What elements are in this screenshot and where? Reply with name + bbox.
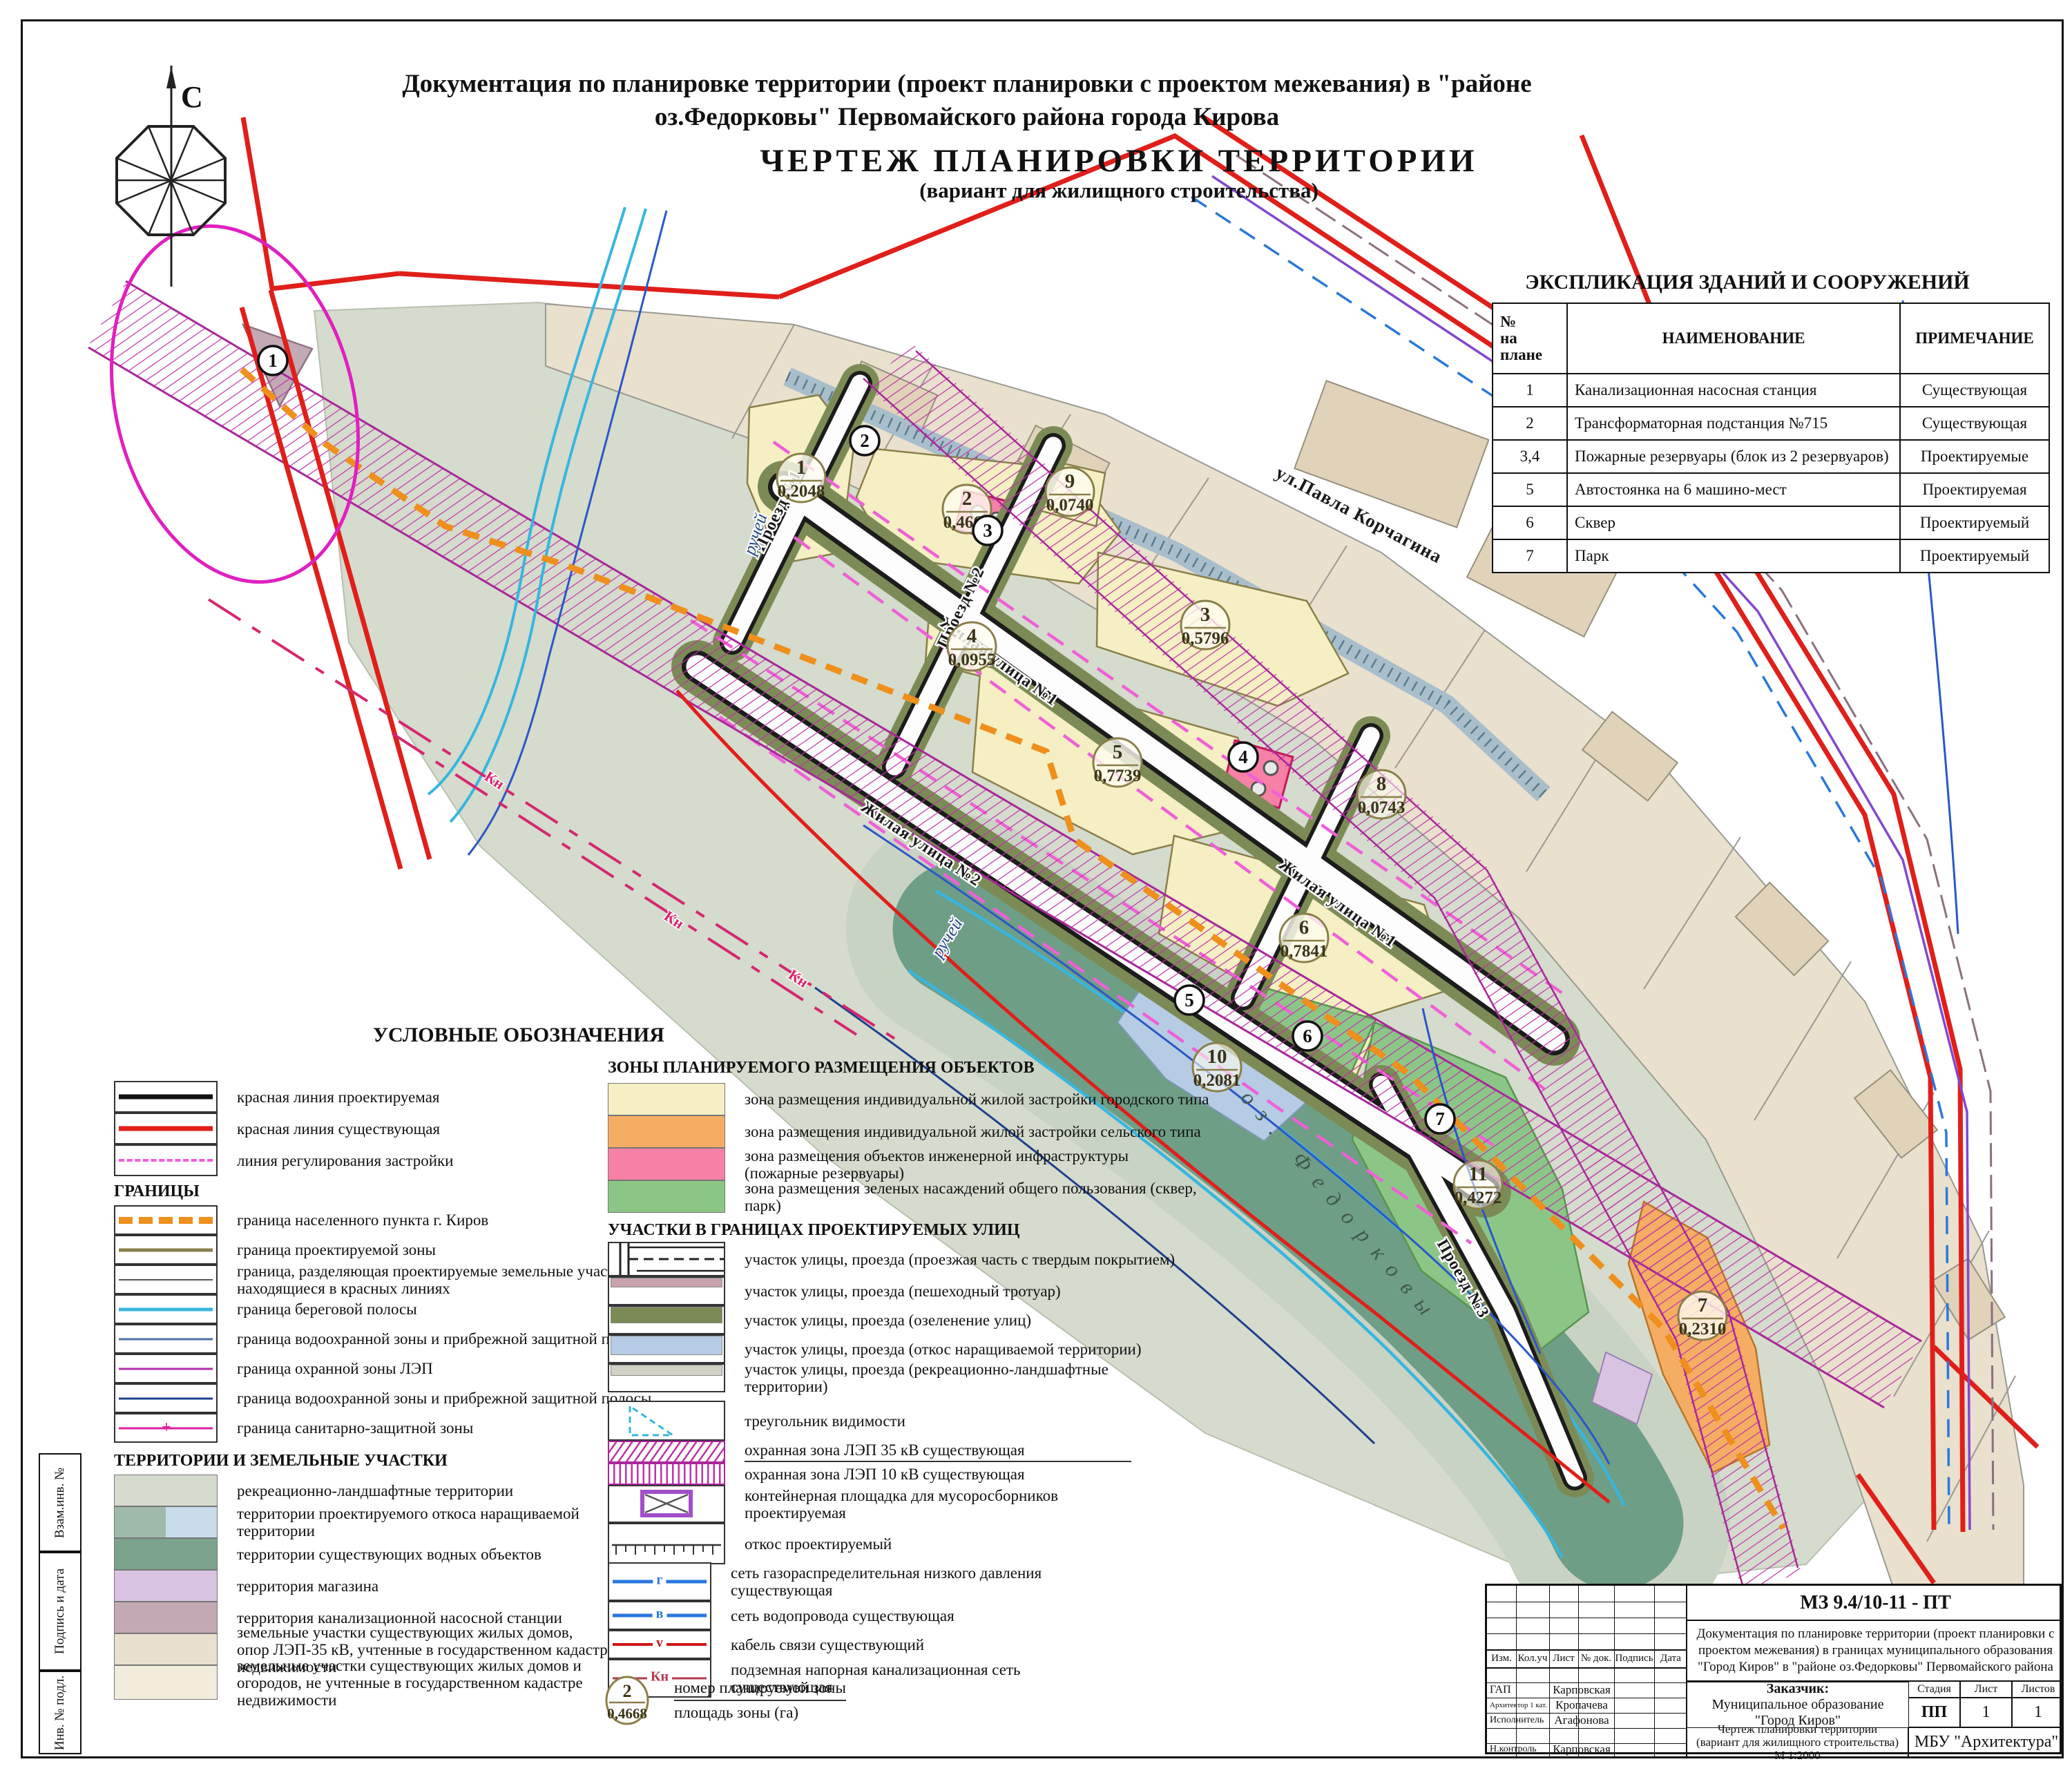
legend-item-label: граница охранной зоны ЛЭП bbox=[237, 1360, 665, 1377]
table-row: 6СкверПроектируемый bbox=[1493, 506, 2049, 539]
lep35-zone-swatch bbox=[608, 1441, 725, 1463]
legend-zones-group: зона размещения индивидуальной жилой зас… bbox=[608, 1083, 1228, 1213]
roadway-icon bbox=[609, 1243, 724, 1275]
legend-item-label: участок улицы, проезда (проезжая часть с… bbox=[745, 1251, 1228, 1268]
role-architect-name: Кропачева bbox=[1549, 1698, 1614, 1713]
legend-item-label: откос проектируемый bbox=[745, 1535, 1228, 1553]
legend-item: контейнерная площадка для мусоросборнико… bbox=[608, 1485, 1228, 1523]
drawing-title: ЧЕРТЕЖ ПЛАНИРОВКИ ТЕРРИТОРИИ bbox=[463, 142, 1775, 180]
col-podpis: Подпись bbox=[1614, 1649, 1654, 1667]
planned-slope-icon bbox=[609, 1524, 724, 1563]
planned-slope-swatch bbox=[608, 1523, 725, 1564]
north-arrow-icon bbox=[117, 66, 225, 287]
red-line-planned-swatch bbox=[114, 1081, 218, 1113]
legend-item-label: красная линия существующая bbox=[237, 1120, 665, 1138]
sheets-value: 1 bbox=[2012, 1698, 2064, 1727]
zones-section-title: ЗОНЫ ПЛАНИРУЕМОГО РАЗМЕЩЕНИЯ ОБЪЕКТОВ bbox=[608, 1059, 1035, 1077]
legend-item-label: зона размещения индивидуальной жилой зас… bbox=[745, 1091, 1228, 1108]
red-line-existing-swatch bbox=[114, 1113, 218, 1144]
legend-item: участок улицы, проезда (откос наращиваем… bbox=[608, 1334, 1228, 1363]
legend-item: гсеть газораспределительная низкого давл… bbox=[608, 1562, 1214, 1601]
legend-item-label: участок улицы, проезда (озеленение улиц) bbox=[745, 1312, 1228, 1329]
legend-item-label: треугольник видимости bbox=[745, 1412, 1228, 1430]
planned-zone-boundary-swatch bbox=[114, 1235, 218, 1265]
legend-item-label: контейнерная площадка для мусоросборнико… bbox=[745, 1487, 1228, 1522]
legend-symbols-group: треугольник видимости охранная зона ЛЭП … bbox=[608, 1401, 1228, 1564]
svg-text:2: 2 bbox=[860, 430, 870, 451]
zone-urban-swatch bbox=[608, 1083, 725, 1115]
drawing-sheet: Кн Кн Кн Жилая улица №1 Жилая улица №1 Ж… bbox=[0, 0, 2072, 1775]
svg-text:7: 7 bbox=[1698, 1294, 1708, 1316]
col-data: Дата bbox=[1654, 1649, 1687, 1667]
col-list: Лист bbox=[1549, 1649, 1578, 1667]
legend-item: земельные участки существующих жилых дом… bbox=[114, 1665, 665, 1700]
legend-item: участок улицы, проезда (рекреационно-лан… bbox=[608, 1363, 1228, 1392]
recreation-swatch bbox=[114, 1475, 218, 1506]
explication-table: № на плане НАИМЕНОВАНИЕ ПРИМЕЧАНИЕ 1Кана… bbox=[1492, 303, 2050, 573]
col-header-num: № на плане bbox=[1493, 303, 1567, 374]
city-boundary-swatch bbox=[114, 1205, 218, 1235]
table-row: 7ПаркПроектируемый bbox=[1493, 539, 2049, 573]
legend-item-label: граница населенного пункта г. Киров bbox=[237, 1211, 665, 1229]
north-label: С bbox=[181, 80, 203, 114]
legend-item-label: сеть газораспределительная низкого давле… bbox=[731, 1564, 1214, 1599]
sheet-label: Лист bbox=[1960, 1681, 2012, 1698]
streets-section-title: УЧАСТКИ В ГРАНИЦАХ ПРОЕКТИРУЕМЫХ УЛИЦ bbox=[608, 1221, 1019, 1240]
svg-text:11: 11 bbox=[1468, 1163, 1487, 1185]
svg-text:5: 5 bbox=[1113, 741, 1123, 763]
street-roadway-swatch bbox=[608, 1242, 725, 1276]
svg-text:6: 6 bbox=[1299, 917, 1310, 939]
stamp-inv: Инв. № подл. bbox=[39, 1671, 81, 1754]
doc-title-line2: оз.Федорковы" Первомайского района город… bbox=[311, 102, 1623, 132]
doc-description: Документация по планировке территории (п… bbox=[1687, 1620, 2064, 1681]
legend-item-label: граница водоохранной зоны и прибрежной з… bbox=[237, 1390, 665, 1407]
dividing-boundary-swatch bbox=[114, 1265, 218, 1294]
legend-item: участок улицы, проезда (проезжая часть с… bbox=[608, 1242, 1228, 1276]
legend-item: зона размещения индивидуальной жилой зас… bbox=[608, 1115, 1228, 1148]
slope-territory-swatch bbox=[114, 1506, 218, 1538]
legend-item-label: граница водоохранной зоны и прибрежной з… bbox=[237, 1330, 665, 1347]
svg-text:3: 3 bbox=[1200, 604, 1211, 626]
role-ncontrol: Н.контроль bbox=[1487, 1742, 1549, 1756]
drawing-subtitle: (вариант для жилищного строительства) bbox=[463, 178, 1775, 203]
water-objects-swatch bbox=[114, 1538, 218, 1570]
legend-item: граница населенного пункта г. Киров bbox=[114, 1205, 665, 1235]
svg-text:7: 7 bbox=[1435, 1109, 1445, 1129]
legend-item: линия регулирования застройки bbox=[114, 1144, 665, 1176]
svg-text:8: 8 bbox=[1376, 773, 1387, 795]
title-block: Изм. Кол.уч Лист № док. Подпись Дата ГАП… bbox=[1485, 1584, 2062, 1754]
svg-text:0,0740: 0,0740 bbox=[1046, 496, 1094, 515]
svg-text:0,2048: 0,2048 bbox=[778, 482, 825, 501]
org-name: МБУ "Архитектура" bbox=[1908, 1727, 2064, 1756]
legend-item: красная линия проектируемая bbox=[114, 1081, 665, 1113]
lep10-zone-swatch bbox=[608, 1463, 725, 1485]
sheets-label: Листов bbox=[2012, 1681, 2064, 1698]
legend-item: всеть водопровода существующая bbox=[608, 1601, 1214, 1630]
legend-item: vкабель связи существующий bbox=[608, 1630, 1214, 1659]
legend-item: граница проектируемой зоны bbox=[114, 1235, 665, 1265]
legend-item: рекреационно-ландшафтные территории bbox=[114, 1475, 665, 1506]
legend-item-label: сеть водопровода существующая bbox=[731, 1607, 1214, 1624]
street-greenery-swatch bbox=[608, 1305, 725, 1334]
legend-item: граница водоохранной зоны и прибрежной з… bbox=[114, 1383, 665, 1413]
svg-text:10: 10 bbox=[1207, 1046, 1227, 1068]
sanitary-boundary-swatch bbox=[114, 1413, 218, 1443]
gas-net-swatch: г bbox=[608, 1562, 711, 1601]
customer-cell: Заказчик: Муниципальное образование "Гор… bbox=[1687, 1681, 1908, 1727]
role-gap: ГАП bbox=[1487, 1682, 1549, 1698]
legend-item-label: граница проектируемой зоны bbox=[237, 1241, 665, 1258]
coastal-strip-boundary-swatch bbox=[114, 1294, 218, 1324]
col-koluch: Кол.уч bbox=[1516, 1649, 1549, 1667]
legend-item: зона размещения зеленых насаждений общег… bbox=[608, 1180, 1228, 1213]
legend-item-label: зона размещения зеленых насаждений общег… bbox=[745, 1180, 1228, 1214]
stamp-podpis: Подпись и дата bbox=[39, 1552, 81, 1671]
cadastre-plots-swatch bbox=[114, 1633, 218, 1665]
legend-item-label: красная линия проектируемая bbox=[237, 1088, 665, 1106]
legend-item: зона размещения индивидуальной жилой зас… bbox=[608, 1083, 1228, 1115]
legend-item: охранная зона ЛЭП 10 кВ существующая bbox=[608, 1463, 1228, 1485]
svg-text:0,2310: 0,2310 bbox=[1679, 1320, 1727, 1339]
svg-text:0,5796: 0,5796 bbox=[1182, 629, 1229, 648]
cable-net-swatch: v bbox=[608, 1630, 711, 1659]
svg-text:0,0743: 0,0743 bbox=[1358, 798, 1406, 817]
legend-item-label: линия регулирования застройки bbox=[237, 1152, 665, 1169]
table-row: 5Автостоянка на 6 машино-местПроектируем… bbox=[1493, 473, 2049, 506]
legend-item-label: граница береговой полосы bbox=[237, 1301, 665, 1318]
legend-item: красная линия существующая bbox=[114, 1113, 665, 1144]
legend-item-label: зона размещения индивидуальной жилой зас… bbox=[745, 1123, 1228, 1140]
col-dok: № док. bbox=[1578, 1649, 1614, 1667]
svg-text:4: 4 bbox=[967, 625, 977, 647]
zone-number-icon: 2 0,4668 bbox=[601, 1674, 653, 1727]
legend-item: граница, разделяющая проектируемые земел… bbox=[114, 1265, 665, 1294]
shop-territory-swatch bbox=[114, 1570, 218, 1602]
svg-text:2: 2 bbox=[623, 1681, 632, 1701]
legend-item-label: участок улицы, проезда (откос наращиваем… bbox=[745, 1341, 1228, 1358]
regulation-line-swatch bbox=[114, 1144, 218, 1176]
col-izm: Изм. bbox=[1487, 1649, 1516, 1667]
waste-container-swatch bbox=[608, 1485, 725, 1523]
zone-rural-swatch bbox=[608, 1115, 725, 1148]
legend-streets-group: участок улицы, проезда (проезжая часть с… bbox=[608, 1242, 1228, 1392]
lep-guard-boundary-swatch bbox=[114, 1354, 218, 1383]
legend-item: территории проектируемого откоса наращив… bbox=[114, 1506, 665, 1538]
svg-text:6: 6 bbox=[1303, 1026, 1312, 1046]
svg-text:4: 4 bbox=[1238, 747, 1248, 767]
legend-title: УСЛОВНЫЕ ОБОЗНАЧЕНИЯ bbox=[373, 1024, 856, 1047]
legend-item: откос проектируемый bbox=[608, 1523, 1228, 1564]
legend-item-label: кабель связи существующий bbox=[731, 1636, 1214, 1653]
zone-green-swatch bbox=[608, 1180, 725, 1213]
legend-item-label: рекреационно-ландшафтные территории bbox=[237, 1482, 665, 1499]
svg-text:0,4272: 0,4272 bbox=[1455, 1189, 1502, 1207]
table-row: 3,4Пожарные резервуары (блок из 2 резерв… bbox=[1493, 440, 2049, 473]
territories-section-title: ТЕРРИТОРИИ И ЗЕМЕЛЬНЫЕ УЧАСТКИ bbox=[114, 1452, 448, 1470]
drawing-name-cell: Чертеж планировки территории (вариант дл… bbox=[1687, 1727, 1908, 1756]
legend-item-label: зона размещения объектов инженерной инфр… bbox=[745, 1147, 1228, 1182]
svg-text:5: 5 bbox=[1184, 990, 1194, 1010]
legend-item-label: территории существующих водных объектов bbox=[237, 1546, 665, 1563]
legend-lines-group: красная линия проектируемая красная лини… bbox=[114, 1081, 665, 1176]
borders-section-title: ГРАНИЦЫ bbox=[114, 1182, 200, 1201]
doc-code: МЗ 9.4/10-11 - ПТ bbox=[1687, 1586, 2064, 1620]
svg-text:0,0955: 0,0955 bbox=[948, 651, 996, 669]
svg-text:1: 1 bbox=[796, 457, 807, 479]
col-header-note: ПРИМЕЧАНИЕ bbox=[1900, 303, 2049, 374]
svg-text:0,7739: 0,7739 bbox=[1094, 767, 1142, 785]
doc-title-line1: Документация по планировке территории (п… bbox=[311, 69, 1623, 99]
zone-number-legend: 2 0,4668 номер планируемой зоны площадь … bbox=[601, 1674, 846, 1727]
legend-item: участок улицы, проезда (озеленение улиц) bbox=[608, 1305, 1228, 1334]
table-row: 1Канализационная насосная станцияСуществ… bbox=[1493, 374, 2049, 407]
zone-number-label: номер планируемой зоны bbox=[674, 1679, 846, 1701]
stage-label: Стадия bbox=[1908, 1681, 1960, 1698]
svg-text:0,7841: 0,7841 bbox=[1280, 942, 1328, 961]
explication-title: ЭКСПЛИКАЦИЯ ЗДАНИЙ И СООРУЖЕНИЙ bbox=[1492, 271, 2003, 294]
col-header-name: НАИМЕНОВАНИЕ bbox=[1567, 303, 1900, 374]
legend-territories-group: рекреационно-ландшафтные территории терр… bbox=[114, 1475, 665, 1700]
legend-item: территория магазина bbox=[114, 1570, 665, 1602]
legend-item: охранная зона ЛЭП 35 кВ существующая bbox=[608, 1441, 1228, 1463]
legend-item: граница санитарно-защитной зоны bbox=[114, 1413, 665, 1443]
legend-borders-group: граница населенного пункта г. Киров гран… bbox=[114, 1205, 665, 1443]
svg-text:0,4668: 0,4668 bbox=[607, 1705, 647, 1722]
legend-item-label: охранная зона ЛЭП 10 кВ существующая bbox=[745, 1466, 1228, 1483]
legend-item-label: участок улицы, проезда (рекреационно-лан… bbox=[745, 1361, 1228, 1395]
sheet-value: 1 bbox=[1960, 1698, 2012, 1727]
svg-text:9: 9 bbox=[1065, 470, 1075, 492]
zone-area-label: площадь зоны (га) bbox=[674, 1704, 846, 1722]
noncadastre-plots-swatch bbox=[114, 1665, 218, 1700]
visibility-triangle-icon bbox=[609, 1402, 724, 1439]
legend-item: граница охранной зоны ЛЭП bbox=[114, 1354, 665, 1383]
street-sidewalk-swatch bbox=[608, 1276, 725, 1305]
legend-item-label: охранная зона ЛЭП 35 кВ существующая bbox=[745, 1441, 1131, 1462]
legend-item: зона размещения объектов инженерной инфр… bbox=[608, 1148, 1228, 1180]
svg-text:2: 2 bbox=[962, 488, 972, 510]
legend-item: граница водоохранной зоны и прибрежной з… bbox=[114, 1324, 665, 1354]
street-recreation-swatch bbox=[608, 1363, 725, 1392]
stamp-vzam: Взам.инв. № bbox=[39, 1453, 81, 1552]
street-slope-swatch bbox=[608, 1334, 725, 1363]
role-architect: Архитектор 1 кат. bbox=[1487, 1698, 1549, 1713]
legend-item-label: территория магазина bbox=[237, 1577, 665, 1595]
svg-text:3: 3 bbox=[983, 520, 992, 541]
kns-territory-swatch bbox=[114, 1602, 218, 1633]
stage-value: ПП bbox=[1908, 1698, 1960, 1727]
side-stamp: Взам.инв. № Подпись и дата Инв. № подл. bbox=[39, 1453, 81, 1754]
role-gap-name: Карповская bbox=[1549, 1682, 1614, 1698]
legend-item: участок улицы, проезда (пешеходный троту… bbox=[608, 1276, 1228, 1305]
visibility-triangle-swatch bbox=[608, 1401, 725, 1441]
legend-item-label: участок улицы, проезда (пешеходный троту… bbox=[745, 1283, 1228, 1300]
water-net-swatch: в bbox=[608, 1601, 711, 1630]
legend-item: треугольник видимости bbox=[608, 1401, 1228, 1441]
water-guard-boundary2-swatch bbox=[114, 1383, 218, 1413]
legend-item-label: граница санитарно-защитной зоны bbox=[237, 1419, 665, 1437]
waste-container-icon bbox=[609, 1486, 724, 1521]
role-executor-name: Агафонова bbox=[1549, 1713, 1614, 1728]
legend-item: территории существующих водных объектов bbox=[114, 1538, 665, 1570]
water-guard-boundary-swatch bbox=[114, 1324, 218, 1354]
table-row: 2Трансформаторная подстанция №715Существ… bbox=[1493, 407, 2049, 440]
role-executor: Исполнитель bbox=[1487, 1713, 1549, 1728]
role-ncontrol-name: Карповская bbox=[1549, 1742, 1614, 1756]
legend-item-label: территории проектируемого откоса наращив… bbox=[237, 1505, 665, 1539]
legend-item: граница береговой полосы bbox=[114, 1294, 665, 1324]
zone-infra-swatch bbox=[608, 1148, 725, 1180]
legend-item-label: граница, разделяющая проектируемые земел… bbox=[237, 1263, 665, 1297]
svg-text:1: 1 bbox=[268, 350, 278, 371]
